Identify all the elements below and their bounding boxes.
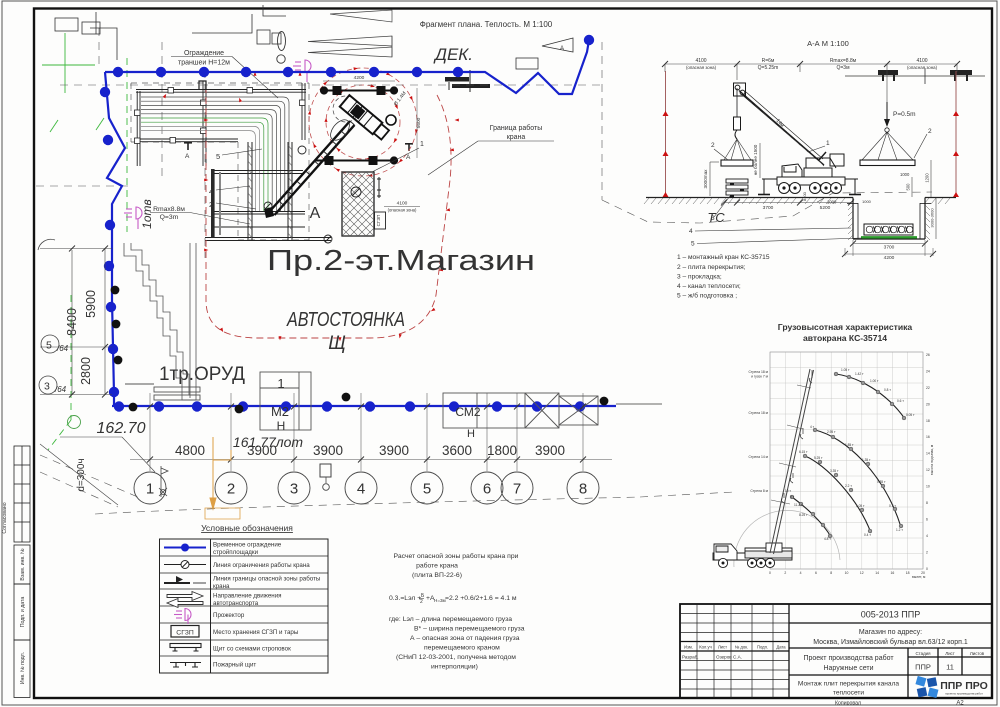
svg-text:6: 6	[926, 518, 928, 522]
svg-text:Rmaх8.8м: Rmaх8.8м	[153, 206, 185, 213]
svg-text:А: А	[310, 205, 321, 222]
svg-text:8: 8	[926, 501, 928, 505]
svg-text:500: 500	[906, 183, 911, 191]
svg-text:Кол.уч: Кол.уч	[699, 645, 712, 650]
svg-text:9 т: 9 т	[790, 495, 795, 499]
svg-text:162.70: 162.70	[97, 420, 146, 437]
svg-text:0.4 т: 0.4 т	[864, 533, 871, 537]
svg-text:ППР ПРО: ППР ПРО	[940, 680, 988, 692]
svg-text:11: 11	[946, 663, 954, 672]
svg-text:крана: крана	[507, 134, 526, 141]
svg-text:1.00 т: 1.00 т	[870, 379, 879, 383]
svg-text:А2: А2	[956, 701, 964, 707]
svg-text:4: 4	[357, 481, 365, 498]
svg-text:4: 4	[209, 187, 213, 196]
svg-text:8: 8	[579, 481, 587, 498]
svg-text:Наружные сети: Наружные сети	[823, 665, 873, 672]
svg-text:0.3.=Lэл +: 0.3.=Lэл +	[389, 595, 421, 602]
svg-text:7: 7	[513, 481, 521, 498]
svg-text:10: 10	[845, 571, 849, 575]
svg-text:1800: 1800	[487, 443, 517, 458]
svg-text:4100: 4100	[397, 201, 408, 207]
svg-text:Н=3м: Н=3м	[434, 598, 446, 603]
svg-text:Инв. № подл.: Инв. № подл.	[20, 652, 26, 684]
svg-text:Q=5.25m: Q=5.25m	[758, 65, 779, 71]
svg-text:3700: 3700	[763, 205, 774, 211]
svg-text:3600: 3600	[442, 443, 472, 458]
svg-text:2800: 2800	[79, 357, 93, 385]
svg-text:(СНиП 12-03-2001, получена мет: (СНиП 12-03-2001, получена методом	[396, 654, 516, 661]
svg-text:Линия границы опасной зоны раб: Линия границы опасной зоны работы	[213, 576, 321, 583]
svg-text:1тр.ОРУД: 1тр.ОРУД	[159, 364, 245, 385]
svg-text:1: 1	[277, 376, 284, 391]
svg-text:4.8 т: 4.8 т	[824, 537, 831, 541]
svg-text:СГЗП: СГЗП	[176, 630, 194, 637]
svg-text:10 т: 10 т	[785, 489, 791, 493]
svg-text:5 – ж/б подготовка ;: 5 – ж/б подготовка ;	[677, 292, 737, 300]
svg-text:3.35 т: 3.35 т	[830, 469, 839, 473]
svg-text:3900: 3900	[247, 443, 277, 458]
svg-text:4100: 4100	[695, 58, 706, 64]
svg-text:4: 4	[800, 571, 802, 575]
svg-text:Озеров С.А.: Озеров С.А.	[716, 655, 742, 660]
svg-text:где: Lэл – длина перемещаемо: где: Lэл – длина перемещаемого груза	[389, 616, 512, 623]
svg-text:В* – ширина перемещаемого груз: В* – ширина перемещаемого груза	[414, 626, 525, 633]
svg-text:(плита ВП-22-6): (плита ВП-22-6)	[412, 572, 462, 579]
svg-text:16: 16	[891, 571, 895, 575]
svg-text:3: 3	[290, 481, 298, 498]
svg-text:1.05 т: 1.05 т	[856, 504, 865, 508]
svg-text:Стрела 18 м: Стрела 18 м	[748, 370, 768, 374]
svg-text:Н: Н	[277, 419, 286, 433]
svg-text:теплосети: теплосети	[833, 690, 865, 697]
svg-text:/64: /64	[56, 344, 69, 353]
svg-text:Грузовысотная характеристика: Грузовысотная характеристика	[778, 322, 913, 332]
svg-text:=2.2 +0.6/2+1.6 = 4.1 м: =2.2 +0.6/2+1.6 = 4.1 м	[445, 595, 517, 602]
svg-text:(опасная зона): (опасная зона)	[686, 65, 717, 70]
svg-text:4200: 4200	[884, 255, 895, 261]
svg-text:4: 4	[689, 228, 693, 235]
svg-text:Разраб.: Разраб.	[682, 655, 699, 660]
svg-text:3900: 3900	[379, 443, 409, 458]
svg-text:5: 5	[691, 241, 695, 248]
svg-text:СГЗП: СГЗП	[376, 215, 381, 227]
svg-text:4 – канал теплосети;: 4 – канал теплосети;	[677, 283, 741, 290]
svg-text:Подп.: Подп.	[757, 645, 768, 650]
svg-text:3000max: 3000max	[703, 169, 708, 189]
svg-text:Н: Н	[467, 428, 475, 440]
svg-text:5.25 т: 5.25 т	[814, 456, 823, 460]
svg-text:Расчет опасной зоны работы кра: Расчет опасной зоны работы крана при	[394, 552, 519, 560]
svg-text:3900: 3900	[313, 443, 343, 458]
svg-text:2.2 т: 2.2 т	[845, 484, 852, 488]
svg-text:1.42 т: 1.42 т	[855, 372, 864, 376]
svg-text:18: 18	[926, 419, 930, 423]
svg-text:24: 24	[926, 369, 930, 373]
svg-text:вылет, м: вылет, м	[912, 575, 926, 579]
svg-text:1.85 т: 1.85 т	[845, 443, 854, 447]
svg-text:1.05 т: 1.05 т	[841, 368, 850, 372]
svg-text:Временное ограждение: Временное ограждение	[213, 542, 282, 549]
svg-text:6: 6	[483, 481, 491, 498]
svg-text:0.05 т: 0.05 т	[906, 413, 915, 417]
svg-text:Стрела 8 м: Стрела 8 м	[750, 489, 768, 493]
svg-text:4 т: 4 т	[810, 425, 815, 429]
svg-text:1: 1	[826, 140, 830, 147]
svg-text:4200: 4200	[354, 75, 365, 81]
svg-text:3: 3	[44, 381, 50, 393]
svg-text:ППР: ППР	[915, 663, 931, 672]
svg-text:Копировал: Копировал	[835, 701, 861, 707]
svg-text:Пр.2-эт.Магазин: Пр.2-эт.Магазин	[267, 245, 535, 277]
svg-text:1: 1	[146, 481, 154, 498]
svg-text:1.35 т: 1.35 т	[862, 458, 871, 462]
svg-text:Щ: Щ	[328, 333, 346, 354]
svg-text:3000-3600: 3000-3600	[930, 208, 935, 228]
svg-text:Q=3м: Q=3м	[836, 65, 850, 71]
svg-text:А: А	[185, 153, 190, 160]
svg-text:работе крана: работе крана	[416, 562, 458, 570]
svg-text:1: 1	[420, 141, 424, 148]
svg-text:Ограждение: Ограждение	[184, 50, 224, 57]
svg-text:2: 2	[928, 128, 932, 135]
svg-text:Подп. и дата: Подп. и дата	[20, 597, 26, 628]
svg-text:6: 6	[815, 571, 817, 575]
svg-text:1000: 1000	[862, 199, 872, 204]
svg-text:1.2 т: 1.2 т	[896, 528, 903, 532]
svg-text:№ док.: № док.	[735, 645, 748, 650]
svg-text:5900: 5900	[84, 290, 98, 318]
svg-text:0: 0	[926, 567, 928, 571]
svg-text:Согласовано: Согласовано	[2, 502, 8, 533]
svg-text:А – опасная зона от падения гр: А – опасная зона от падения груза	[410, 635, 520, 642]
svg-text:2: 2	[420, 599, 423, 605]
svg-text:АВТОСТОЯНКА: АВТОСТОЯНКА	[286, 309, 405, 331]
svg-text:14: 14	[875, 571, 879, 575]
svg-text:Фрагмент плана. Теплость. М 1: Фрагмент плана. Теплость. М 1:100	[420, 20, 553, 29]
svg-text:26: 26	[926, 353, 930, 357]
svg-text:2.95 т: 2.95 т	[827, 430, 836, 434]
svg-text:интерполяции): интерполяции)	[431, 664, 478, 671]
svg-text:2: 2	[227, 481, 235, 498]
svg-text:высота подъема, м: высота подъема, м	[930, 444, 934, 475]
svg-text:стройплощадки: стройплощадки	[213, 549, 259, 556]
svg-text:0.85 т: 0.85 т	[877, 480, 886, 484]
svg-text:3900: 3900	[535, 443, 565, 458]
svg-text:/64: /64	[54, 385, 67, 394]
svg-text:d=300ч: d=300ч	[76, 458, 87, 491]
svg-text:1000: 1000	[900, 172, 910, 177]
svg-text:Стрела 14 м: Стрела 14 м	[748, 455, 768, 459]
svg-text:крана: крана	[213, 583, 230, 590]
svg-text:Место хранения СГЗП и тары: Место хранения СГЗП и тары	[213, 629, 299, 636]
svg-text:005-2013 ППР: 005-2013 ППР	[861, 610, 920, 620]
svg-text:Rmaх=8.8м: Rmaх=8.8м	[830, 58, 857, 64]
svg-text:Стадия: Стадия	[916, 651, 932, 656]
svg-text:2: 2	[926, 550, 928, 554]
svg-text:Q=3m: Q=3m	[160, 214, 179, 221]
svg-text:Проект производства работ: Проект производства работ	[803, 654, 894, 662]
svg-text:22: 22	[926, 386, 930, 390]
svg-text:проекты производства работ: проекты производства работ	[945, 692, 983, 696]
svg-text:1000: 1000	[827, 200, 837, 205]
svg-text:8400: 8400	[802, 191, 807, 201]
svg-text:0: 0	[769, 571, 771, 575]
svg-text:8: 8	[830, 571, 832, 575]
svg-text:5200: 5200	[820, 205, 831, 211]
svg-text:Магазин по адресу:: Магазин по адресу:	[859, 629, 922, 636]
svg-text:10: 10	[926, 485, 930, 489]
svg-text:3 – прокладка;: 3 – прокладка;	[677, 274, 722, 281]
svg-text:5: 5	[46, 340, 52, 352]
svg-text:5600: 5600	[416, 117, 422, 128]
svg-text:R=6м: R=6м	[762, 58, 775, 64]
svg-text:20: 20	[926, 402, 930, 406]
svg-text:не более 1500: не более 1500	[753, 144, 758, 175]
svg-text:Линия ограничения работы крана: Линия ограничения работы крана	[213, 562, 310, 569]
svg-text:А: А	[560, 46, 564, 52]
svg-text:Направление движения: Направление движения	[213, 593, 282, 600]
svg-text:4100: 4100	[916, 58, 927, 64]
svg-text:автокрана КС-35714: автокрана КС-35714	[803, 333, 887, 343]
svg-text:А-А М 1:100: А-А М 1:100	[807, 39, 849, 48]
svg-text:3700: 3700	[884, 245, 895, 251]
svg-text:1 – монтажный кран КС-35715: 1 – монтажный кран КС-35715	[677, 253, 770, 261]
svg-text:Щит со схемами строповок: Щит со схемами строповок	[213, 646, 291, 653]
svg-text:2: 2	[209, 200, 213, 209]
svg-text:1200: 1200	[925, 173, 930, 183]
svg-text:8400: 8400	[65, 308, 79, 336]
svg-text:Лист: Лист	[718, 645, 727, 650]
svg-text:перемещаемого краном: перемещаемого краном	[424, 645, 500, 652]
svg-text:Лист: Лист	[945, 651, 955, 656]
svg-text:11.2 т: 11.2 т	[794, 503, 803, 507]
svg-text:А: А	[406, 154, 411, 161]
svg-text:4800: 4800	[175, 443, 205, 458]
svg-text:4: 4	[926, 534, 928, 538]
svg-text:Взам. инв. №: Взам. инв. №	[20, 548, 26, 581]
svg-text:Дата: Дата	[776, 645, 786, 650]
svg-text:5: 5	[423, 481, 431, 498]
svg-text:0.8 т: 0.8 т	[884, 388, 891, 392]
svg-text:(опасная зона): (опасная зона)	[388, 208, 417, 213]
svg-text:Изм.: Изм.	[684, 645, 693, 650]
svg-text:автотранспорта: автотранспорта	[213, 600, 259, 607]
svg-text:2 – плита перекрытия;: 2 – плита перекрытия;	[677, 264, 746, 271]
svg-text:P=0.5m: P=0.5m	[893, 111, 916, 118]
svg-text:Прожектор: Прожектор	[213, 612, 245, 619]
svg-text:0.7 т: 0.7 т	[889, 504, 896, 508]
svg-text:и гусек 7 м: и гусек 7 м	[751, 375, 769, 379]
svg-text:ДЕК.: ДЕК.	[433, 45, 473, 64]
svg-text:12: 12	[860, 571, 864, 575]
svg-text:Листов: Листов	[970, 651, 985, 656]
svg-text:2: 2	[711, 142, 715, 149]
svg-text:Граница работы: Граница работы	[490, 124, 543, 132]
svg-text:Условные обозначения: Условные обозначения	[201, 523, 293, 533]
svg-text:М2: М2	[271, 404, 289, 419]
svg-text:(опасная зона): (опасная зона)	[907, 65, 938, 70]
svg-text:Пожарный щит: Пожарный щит	[213, 662, 256, 669]
svg-text:Стрела 18 м: Стрела 18 м	[748, 411, 768, 415]
svg-text:2: 2	[784, 571, 786, 575]
svg-text:16: 16	[926, 435, 930, 439]
svg-text:5: 5	[216, 152, 220, 161]
svg-text:СМ2: СМ2	[455, 405, 481, 419]
svg-text:Москва, Измайловский бульвар в: Москва, Измайловский бульвар вл.63/12 ко…	[813, 638, 968, 646]
svg-text:0.6 т: 0.6 т	[897, 399, 904, 403]
svg-text:18: 18	[906, 571, 910, 575]
svg-text:8.25 т: 8.25 т	[799, 513, 808, 517]
svg-text:Монтаж плит перекрытия канала: Монтаж плит перекрытия канала	[798, 681, 900, 688]
svg-text:6.15 т: 6.15 т	[799, 450, 808, 454]
svg-text:траншеи Н=12м: траншеи Н=12м	[178, 60, 230, 67]
